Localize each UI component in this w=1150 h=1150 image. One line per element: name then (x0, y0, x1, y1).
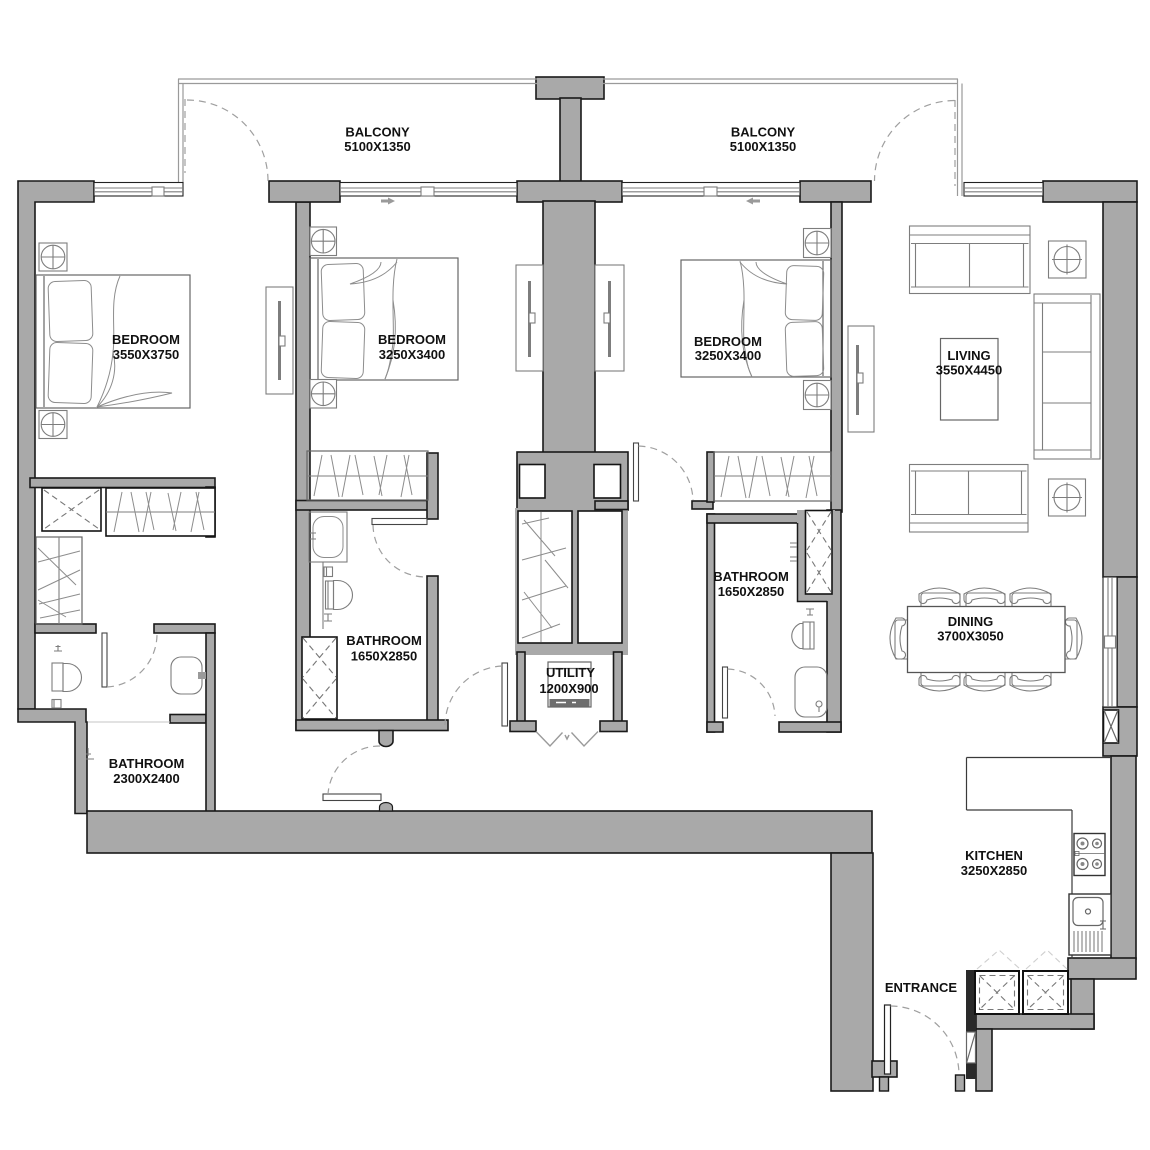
svg-text:1200X900: 1200X900 (539, 681, 598, 696)
svg-text:DINING: DINING (948, 614, 994, 629)
svg-text:BATHROOM: BATHROOM (713, 569, 789, 584)
svg-text:LIVING: LIVING (947, 348, 990, 363)
svg-text:BEDROOM: BEDROOM (694, 334, 762, 349)
svg-text:KITCHEN: KITCHEN (965, 848, 1023, 863)
svg-text:BATHROOM: BATHROOM (109, 756, 185, 771)
svg-text:3550X4450: 3550X4450 (936, 363, 1003, 378)
svg-text:3250X2850: 3250X2850 (961, 863, 1028, 878)
svg-text:BEDROOM: BEDROOM (112, 332, 180, 347)
svg-text:3250X3400: 3250X3400 (379, 347, 446, 362)
svg-text:1650X2850: 1650X2850 (351, 649, 418, 664)
svg-text:1650X2850: 1650X2850 (718, 584, 785, 599)
svg-text:3550X3750: 3550X3750 (113, 347, 180, 362)
svg-text:BALCONY: BALCONY (345, 125, 410, 140)
svg-text:BEDROOM: BEDROOM (378, 332, 446, 347)
svg-text:BALCONY: BALCONY (731, 125, 796, 140)
svg-text:2300X2400: 2300X2400 (113, 771, 180, 786)
svg-text:ENTRANCE: ENTRANCE (885, 980, 958, 995)
svg-text:5100X1350: 5100X1350 (730, 139, 797, 154)
svg-text:UTILITY: UTILITY (546, 665, 595, 680)
svg-text:5100X1350: 5100X1350 (344, 139, 411, 154)
svg-text:3700X3050: 3700X3050 (937, 629, 1004, 644)
svg-text:3250X3400: 3250X3400 (695, 348, 762, 363)
svg-text:BATHROOM: BATHROOM (346, 633, 422, 648)
